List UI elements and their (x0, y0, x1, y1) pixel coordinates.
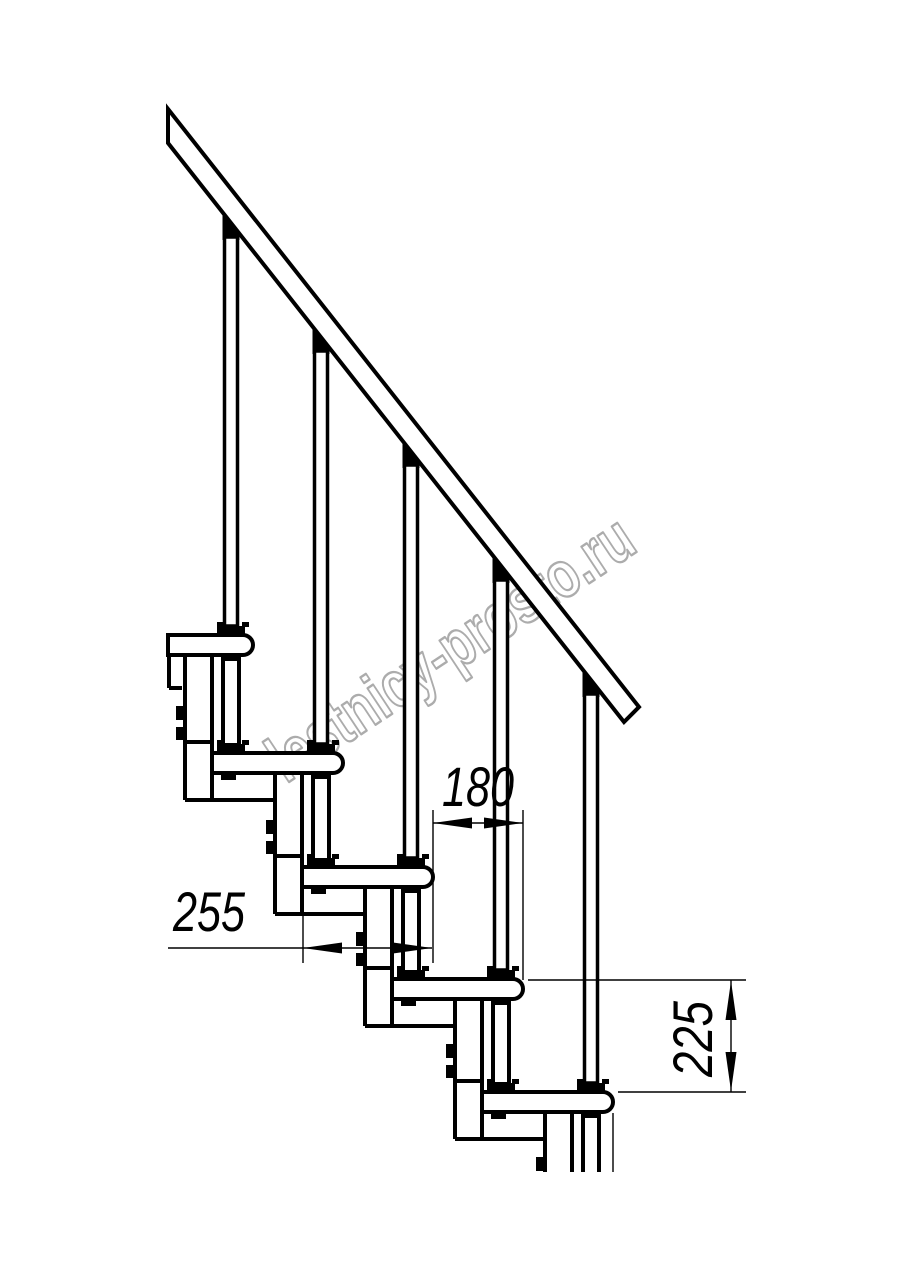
riser-tube-2 (313, 771, 329, 861)
baluster-tube (225, 237, 238, 626)
tread-1 (168, 635, 253, 655)
tread-clamp (311, 887, 326, 894)
baluster-foot (217, 626, 245, 635)
dimension-value: 180 (442, 755, 514, 818)
baluster-foot-nub (602, 1079, 609, 1084)
riser-foot-nub (512, 1079, 519, 1084)
baluster-foot (307, 744, 335, 753)
riser-tube-1 (223, 653, 239, 745)
baluster-foot (397, 858, 425, 867)
riser-foot-nub (217, 740, 224, 745)
baluster-foot-nub (422, 854, 429, 859)
riser-foot (217, 744, 245, 753)
bolt (266, 841, 276, 854)
dimension-225: 225 (528, 980, 746, 1092)
baluster-foot-nub (242, 622, 249, 627)
baluster-foot (577, 1083, 605, 1092)
riser-foot (487, 1083, 515, 1092)
staircase-technical-drawing: lestnicy-prosto.ru (0, 0, 914, 1280)
riser-foot (307, 858, 335, 867)
baluster-foot-nub (332, 740, 339, 745)
arrowhead (726, 1052, 737, 1091)
riser-foot (397, 970, 425, 979)
bolt (266, 820, 276, 834)
arrowhead (303, 943, 342, 954)
riser-foot-nub (332, 854, 339, 859)
section-cut-edge (169, 657, 182, 688)
baluster-foot-nub (487, 966, 494, 971)
bolt (176, 727, 186, 740)
baluster-foot-nub (307, 740, 314, 745)
tread-clamp (401, 999, 416, 1006)
tread-4 (392, 979, 523, 999)
column-5 (545, 1112, 572, 1172)
tread-clamp (491, 1112, 506, 1119)
bolt (356, 953, 366, 966)
riser-foot-nub (242, 740, 249, 745)
baluster-tube (405, 465, 418, 858)
riser-foot-nub (422, 966, 429, 971)
baluster-5 (577, 670, 609, 1092)
riser-foot-nub (397, 966, 404, 971)
bolt (446, 1065, 456, 1078)
riser-tube-5 (583, 1110, 599, 1172)
riser-tube-3 (403, 885, 419, 973)
baluster-tube (585, 694, 598, 1083)
arrowhead (433, 818, 472, 829)
bolt (446, 1044, 456, 1058)
baluster-foot-nub (397, 854, 404, 859)
bolt (356, 932, 366, 946)
dimension-180: 180 (433, 755, 523, 980)
tread-3 (302, 867, 433, 887)
tread-2 (212, 753, 343, 773)
baluster-foot-nub (577, 1079, 584, 1084)
arrowhead (726, 981, 737, 1020)
dimension-value: 225 (661, 1000, 724, 1078)
riser-foot-nub (307, 854, 314, 859)
bolt (536, 1157, 546, 1171)
baluster-foot-nub (217, 622, 224, 627)
extension-lines (433, 810, 523, 980)
riser-foot-nub (487, 1079, 494, 1084)
dimension-value: 255 (172, 880, 245, 943)
baluster-foot-nub (512, 966, 519, 971)
baluster-tube (315, 351, 328, 744)
baluster-1 (217, 213, 249, 635)
bolt (176, 706, 186, 720)
tread-5 (482, 1092, 613, 1112)
drawing-page: lestnicy-prosto.ru (0, 0, 914, 1280)
tread-clamp (221, 773, 236, 780)
riser-tube-4 (493, 997, 509, 1084)
baluster-foot (487, 970, 515, 979)
